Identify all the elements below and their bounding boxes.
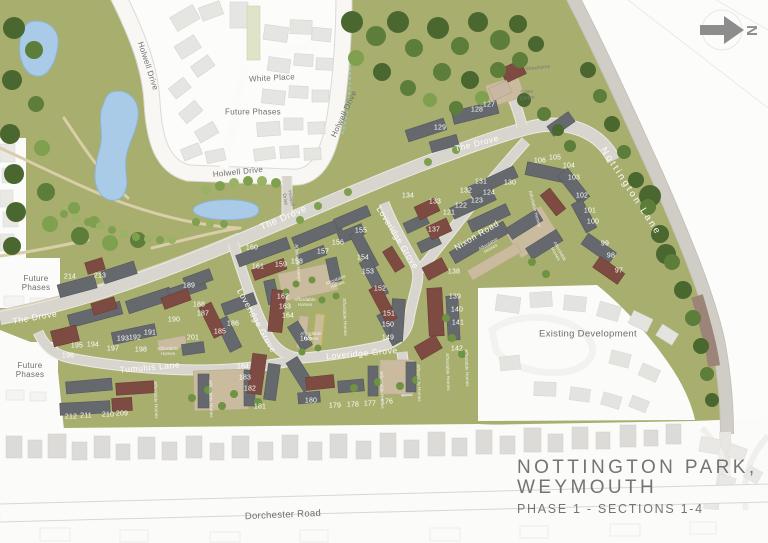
plot-number: 187 (197, 311, 209, 318)
plot-number: 181 (254, 404, 266, 411)
plot-number: 127 (483, 102, 495, 109)
plot-number: 129 (434, 125, 446, 132)
plot-number: 132 (460, 188, 472, 195)
plot-number: 122 (455, 203, 467, 210)
plot-number: 121 (443, 210, 455, 217)
plot-number: 160 (246, 245, 258, 252)
plot-number: 178 (347, 402, 359, 409)
plot-number: 165 (300, 336, 312, 343)
plot-number: 164 (282, 313, 294, 320)
plot-number: 212 (65, 414, 77, 421)
plot-number: 194 (87, 342, 99, 349)
affordable-homes-label: Affordable Homes (157, 347, 178, 357)
plot-number: 130 (504, 180, 516, 187)
road-label: Loveridge Grove (234, 287, 277, 355)
plot-number: 139 (449, 294, 461, 301)
plot-number: 214 (64, 274, 76, 281)
plot-number: 106 (534, 158, 546, 165)
plot-number: 133 (429, 199, 441, 206)
road-label: Loveridge Grove (374, 205, 420, 271)
plot-number: 210 (102, 412, 114, 419)
plot-number: 189 (183, 283, 195, 290)
road-label: Holwell Drive (136, 41, 160, 92)
plot-number: 102 (576, 193, 588, 200)
plot-number: 198 (135, 347, 147, 354)
affordable-homes-label: Affordable Homes (478, 237, 502, 256)
plot-number: 97 (615, 268, 623, 275)
road-label: Holwell Drive (329, 89, 359, 139)
road-label: Tumulus Lane (119, 360, 180, 375)
plot-number: 124 (483, 190, 495, 197)
affordable-homes-label: Affordable Homes (415, 364, 421, 402)
road-label: Nottington Lane (597, 146, 662, 238)
plot-number: 211 (80, 413, 92, 420)
plot-number: 213 (94, 273, 106, 280)
affordable-homes-label: Affordable Homes (444, 353, 450, 391)
plot-number: 176 (381, 399, 393, 406)
road-label: Holwell Drive (280, 190, 294, 208)
plot-number: 195 (71, 343, 83, 350)
plot-number: 99 (601, 241, 609, 248)
plot-number: 153 (362, 269, 374, 276)
affordable-homes-label: Affordable Homes (547, 241, 566, 265)
affordable-homes-label: Affordable Homes (325, 274, 349, 291)
road-label: Dorchester Road (245, 509, 322, 523)
affordable-homes-label: Affordable Homes (293, 244, 301, 282)
road-label: White Place (249, 72, 295, 84)
affordable-homes-label: Affordable Homes (463, 349, 469, 387)
plot-number: 141 (452, 320, 464, 327)
plot-number: 149 (382, 335, 394, 342)
road-label: Loveridge Grove (326, 346, 398, 362)
plot-number: 156 (332, 240, 344, 247)
affordable-homes-label: Affordable Homes (294, 298, 315, 308)
road-label: Holwell Drive (212, 165, 263, 179)
affordable-homes-label: Affordable Homes (341, 298, 347, 336)
plot-number: 123 (471, 198, 483, 205)
plot-number: 179 (329, 403, 341, 410)
plot-number: 196 (62, 353, 74, 360)
plot-number: 188 (193, 302, 205, 309)
plot-number: 154 (357, 255, 369, 262)
area-label: Future Phases (22, 274, 50, 292)
plot-number: 201 (187, 335, 199, 342)
plot-number: 190 (168, 317, 180, 324)
plan-subtitle: PHASE 1 - SECTIONS 1-4 (517, 502, 758, 516)
road-label: The Drove (454, 134, 500, 154)
site-plan-canvas: 9798991001011021031041051061211221231241… (0, 0, 768, 543)
area-label: Showhome (525, 65, 550, 73)
plot-number: 159 (275, 262, 287, 269)
plan-title-line1: NOTTINGTON PARK, (517, 458, 758, 478)
plot-number: 137 (428, 227, 440, 234)
plot-number: 158 (291, 259, 303, 266)
plot-number: 162 (277, 294, 289, 301)
road-label: Future Phases (225, 107, 281, 116)
road-label: Existing Development (539, 330, 637, 341)
plot-number: 197 (107, 346, 119, 353)
plot-number: 192 (129, 335, 141, 342)
plot-number: 155 (355, 228, 367, 235)
plot-number: 152 (374, 286, 386, 293)
plot-number: 140 (451, 307, 463, 314)
plot-number: 138 (448, 269, 460, 276)
area-label: Future Phases (16, 361, 44, 379)
plot-number: 104 (563, 163, 575, 170)
plan-title-line2: WEYMOUTH (517, 478, 758, 498)
north-label: N (743, 25, 760, 36)
area-label: Sales Centre (519, 89, 535, 102)
plot-number: 157 (317, 249, 329, 256)
plot-number: 182 (244, 386, 256, 393)
plot-number: 150 (382, 322, 394, 329)
affordable-homes-label: Affordable Homes (207, 380, 213, 418)
plot-number: 193 (117, 336, 129, 343)
road-label: Nixon Road (453, 219, 501, 253)
plot-number: 161 (252, 264, 264, 271)
affordable-homes-label: Affordable Homes (300, 332, 321, 342)
plot-number: 184 (237, 364, 249, 371)
plot-number: 131 (475, 179, 487, 186)
plot-number: 103 (568, 175, 580, 182)
plot-number: 142 (451, 346, 463, 353)
plot-number: 191 (144, 330, 156, 337)
road-label: The Drove (259, 204, 309, 233)
plot-number: 134 (402, 193, 414, 200)
plot-number: 128 (471, 107, 483, 114)
title-block: NOTTINGTON PARK, WEYMOUTH PHASE 1 - SECT… (517, 458, 758, 516)
plot-number: 185 (214, 329, 226, 336)
plot-number: 101 (584, 208, 596, 215)
plot-number: 98 (607, 253, 615, 260)
road-label: The Drove (12, 309, 58, 326)
plot-number: 100 (587, 219, 599, 226)
plot-number: 177 (364, 401, 376, 408)
plot-number: 209 (116, 411, 128, 418)
plot-number: 163 (279, 304, 291, 311)
affordable-homes-label: Affordable Homes (527, 190, 541, 228)
plot-number: 183 (239, 375, 251, 382)
plot-number: 186 (227, 321, 239, 328)
plot-number: 180 (305, 398, 317, 405)
plot-number: 151 (383, 311, 395, 318)
affordable-homes-label: Affordable Homes (378, 371, 384, 409)
plot-number: 105 (549, 155, 561, 162)
affordable-homes-label: Affordable Homes (152, 381, 158, 419)
